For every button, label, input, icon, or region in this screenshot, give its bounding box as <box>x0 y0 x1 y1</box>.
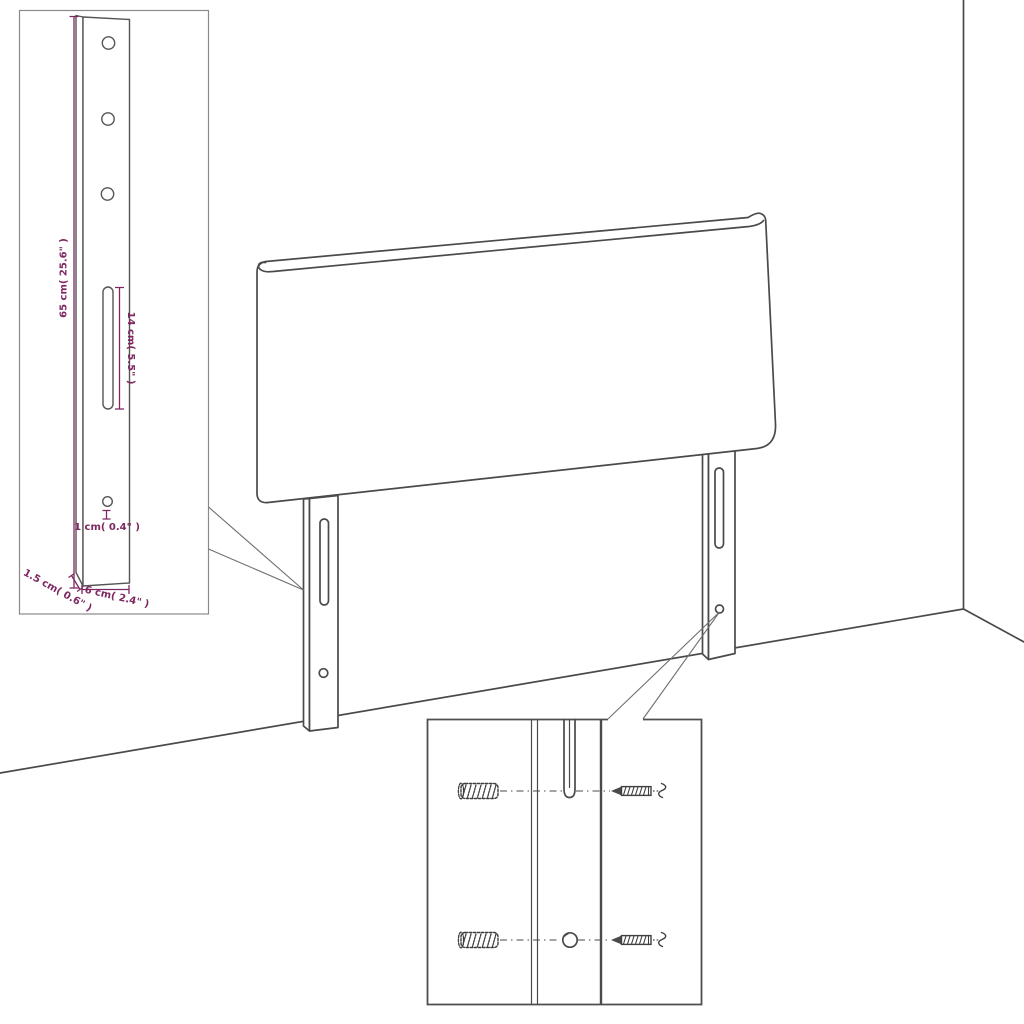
dimension-width-label: 6 cm( 2.4" ) <box>84 585 151 611</box>
assembly-diagram: 65 cm( 25.6" ) 14 cm( 5.5" ) 1 cm( 0.4" … <box>0 0 1024 1024</box>
inset-leg-side-face <box>76 16 83 587</box>
panel-outline <box>257 213 776 502</box>
right-leg-callout <box>608 612 720 719</box>
right-leg-front-face <box>709 450 736 660</box>
callout-wedge-left <box>608 612 720 719</box>
dimension-slot-label: 14 cm( 5.5" ) <box>125 312 136 385</box>
floor-line-right <box>964 609 1024 642</box>
callout-wedge-right <box>643 612 720 719</box>
callout-line-lower <box>209 549 304 590</box>
diagram-svg: 65 cm( 25.6" ) 14 cm( 5.5" ) 1 cm( 0.4" … <box>0 0 1024 1024</box>
left-leg-side-face <box>304 499 310 732</box>
left-leg-front-face <box>310 496 339 732</box>
inset-leg-front-face <box>83 17 130 586</box>
leg-detail-inset: 65 cm( 25.6" ) 14 cm( 5.5" ) 1 cm( 0.4" … <box>20 11 209 615</box>
callout-line-upper <box>209 507 304 590</box>
left-leg-callout <box>209 507 304 590</box>
headboard-panel <box>257 213 776 502</box>
left-leg <box>304 496 339 732</box>
mounting-detail-inset <box>428 720 702 1005</box>
dimension-hole-label: 1 cm( 0.4" ) <box>74 522 140 533</box>
dimension-height-label: 65 cm( 25.6" ) <box>59 238 70 318</box>
